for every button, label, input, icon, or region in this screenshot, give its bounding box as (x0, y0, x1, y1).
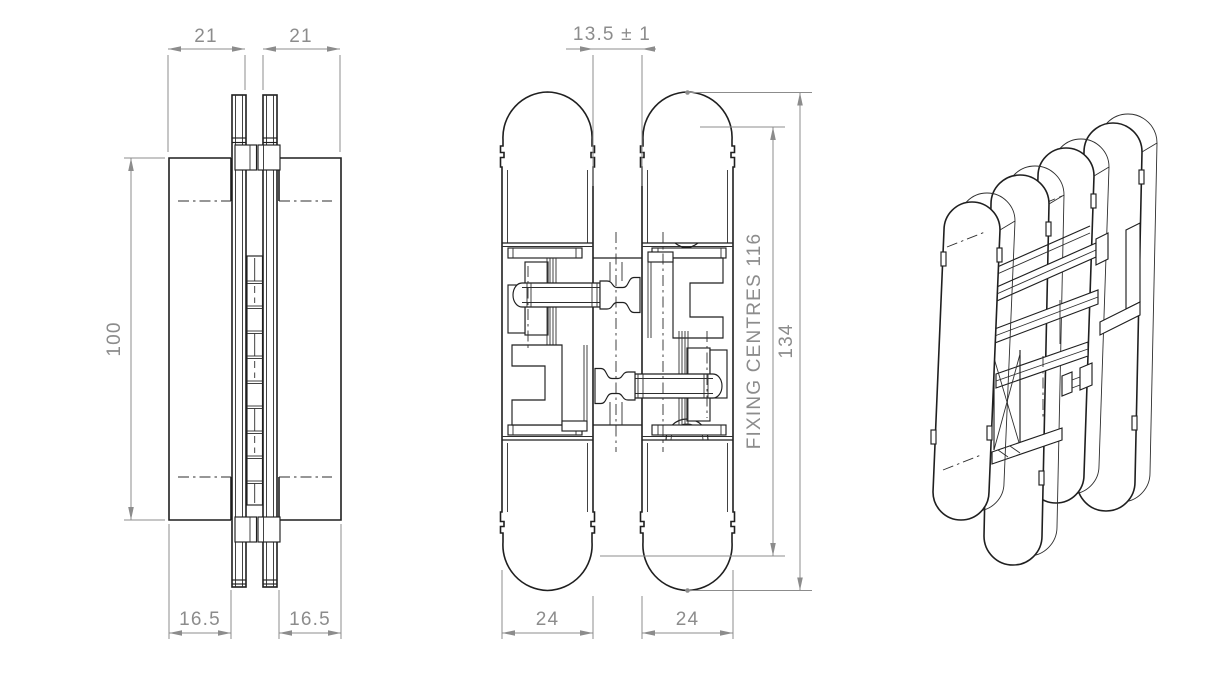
front-mechanism-top (502, 243, 733, 352)
front-left-leaf (501, 92, 595, 591)
side-hinge-leaves (232, 95, 280, 587)
side-left-body (169, 158, 231, 520)
front-right-leaf (641, 92, 735, 591)
side-right-body (279, 158, 341, 520)
dim-front-bottom-left-label: 24 (536, 609, 560, 630)
dim-side-bottom-left-label: 16.5 (179, 609, 221, 630)
front-wall-lines (508, 170, 728, 512)
dimension-front-fixing-centres: FIXING CENTRES 116 (600, 127, 785, 556)
side-knuckle-column (247, 256, 263, 505)
front-top-arm (513, 278, 640, 313)
dim-front-fixing-centres-label: FIXING CENTRES 116 (744, 233, 765, 450)
dim-front-overall-height-label: 134 (776, 323, 797, 358)
hinge-technical-drawing: 21 21 100 16.5 16.5 (0, 0, 1214, 680)
isometric-view (931, 114, 1157, 565)
dim-side-height-label: 100 (104, 321, 125, 356)
front-bottom-arm (595, 369, 722, 404)
front-mechanism-bottom (502, 331, 733, 440)
side-view: 21 21 100 16.5 16.5 (104, 26, 341, 639)
dim-front-bottom-right-label: 24 (676, 609, 700, 630)
dimension-side-height: 100 (104, 158, 165, 520)
dim-front-gap-label: 13.5 ± 1 (573, 24, 651, 45)
dimension-front-bottom: 24 24 (502, 570, 733, 639)
dim-side-top-left-label: 21 (194, 26, 218, 47)
front-view: 13.5 ± 1 24 24 FIXING CENTRES 116 (501, 24, 813, 639)
dim-side-bottom-right-label: 16.5 (289, 609, 331, 630)
technical-drawing-page: 21 21 100 16.5 16.5 (0, 0, 1214, 680)
dimension-side-top: 21 21 (168, 26, 340, 152)
dim-side-top-right-label: 21 (289, 26, 313, 47)
